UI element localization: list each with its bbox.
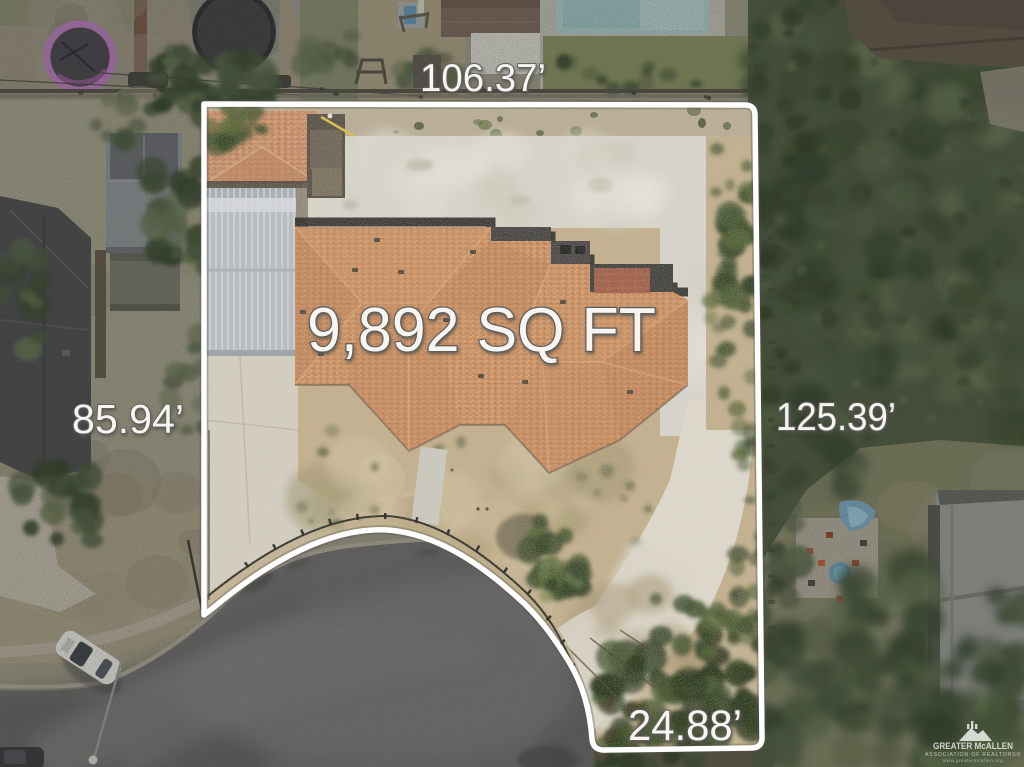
svg-text:106.37’: 106.37’ — [420, 57, 546, 100]
svg-text:85.94’: 85.94’ — [72, 396, 184, 442]
svg-text:www.greatermcallen.org: www.greatermcallen.org — [943, 758, 1003, 763]
svg-text:9,892 SQ FT: 9,892 SQ FT — [307, 296, 656, 365]
svg-text:GREATER McALLEN: GREATER McALLEN — [933, 741, 1013, 752]
svg-text:24.88’: 24.88’ — [628, 702, 742, 750]
svg-text:ASSOCIATION OF REALTORS®: ASSOCIATION OF REALTORS® — [925, 751, 1021, 758]
svg-text:125.39’: 125.39’ — [776, 396, 896, 439]
